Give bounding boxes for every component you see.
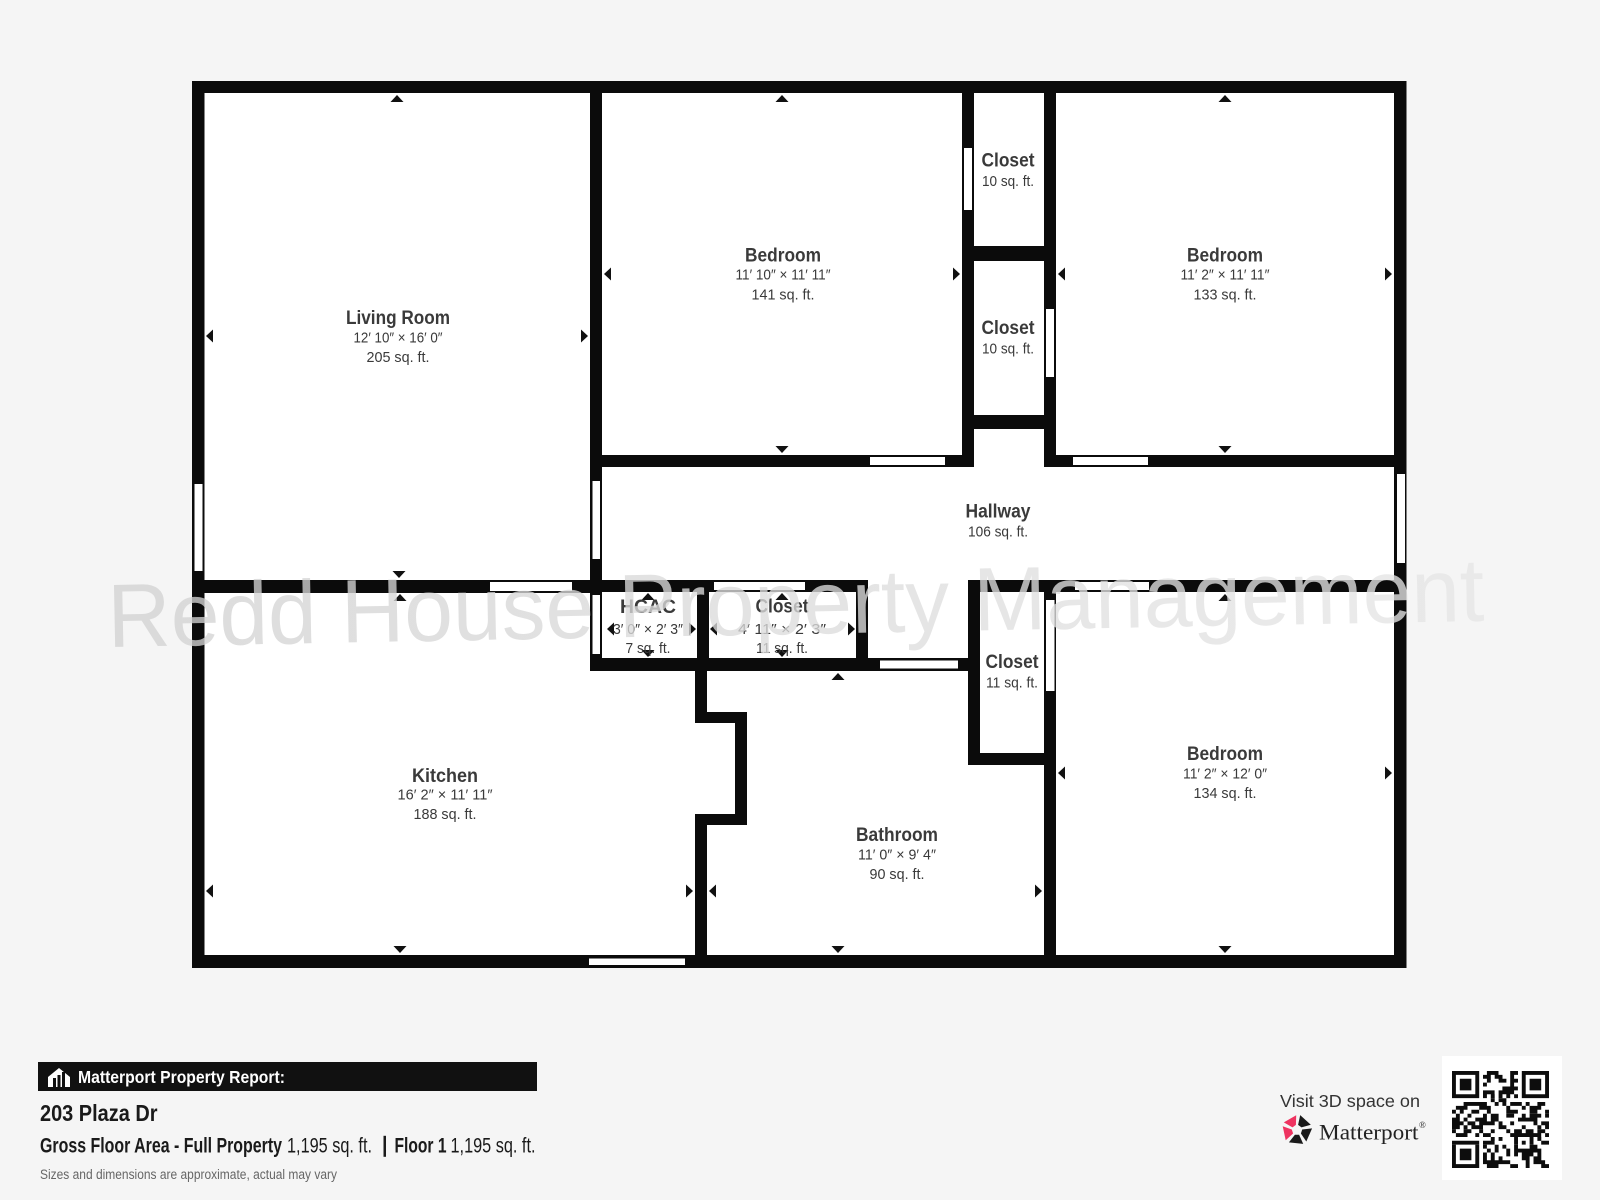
svg-text:11′ 0″ × 9′ 4″: 11′ 0″ × 9′ 4″	[858, 847, 937, 864]
svg-text:90 sq. ft.: 90 sq. ft.	[870, 866, 925, 883]
svg-text:10 sq. ft.: 10 sq. ft.	[982, 173, 1034, 190]
svg-text:Sizes and dimensions are appro: Sizes and dimensions are approximate, ac…	[40, 1167, 337, 1182]
svg-text:11′ 2″ × 12′ 0″: 11′ 2″ × 12′ 0″	[1183, 766, 1268, 783]
svg-text:16′ 2″ × 11′ 11″: 16′ 2″ × 11′ 11″	[398, 787, 494, 804]
svg-text:Matterport Property Report:: Matterport Property Report:	[78, 1067, 285, 1087]
svg-text:12′ 10″ × 16′ 0″: 12′ 10″ × 16′ 0″	[354, 330, 444, 347]
svg-text:Bathroom: Bathroom	[856, 825, 938, 846]
svg-text:Bedroom: Bedroom	[1187, 246, 1263, 267]
svg-text:203 Plaza Dr: 203 Plaza Dr	[40, 1100, 158, 1126]
svg-text:141 sq. ft.: 141 sq. ft.	[752, 287, 815, 304]
svg-text:Bedroom: Bedroom	[1187, 744, 1263, 765]
svg-text:Bedroom: Bedroom	[745, 246, 821, 267]
svg-text:Floor 1: Floor 1	[395, 1135, 447, 1158]
svg-text:1,195 sq. ft.: 1,195 sq. ft.	[287, 1135, 372, 1158]
svg-text:10 sq. ft.: 10 sq. ft.	[982, 341, 1034, 358]
svg-text:Hallway: Hallway	[966, 502, 1031, 523]
svg-text:Kitchen: Kitchen	[412, 766, 478, 787]
svg-text:11 sq. ft.: 11 sq. ft.	[986, 675, 1038, 692]
svg-text:Closet: Closet	[986, 652, 1040, 673]
svg-text:Matterport: Matterport	[1319, 1120, 1419, 1145]
svg-text:Visit 3D space on: Visit 3D space on	[1280, 1091, 1420, 1111]
svg-text:Closet: Closet	[982, 151, 1036, 172]
svg-text:Closet: Closet	[982, 318, 1036, 339]
svg-text:11′ 10″ × 11′ 11″: 11′ 10″ × 11′ 11″	[736, 267, 832, 284]
svg-text:Living Room: Living Room	[346, 308, 450, 329]
svg-text:1,195 sq. ft.: 1,195 sq. ft.	[451, 1135, 536, 1158]
svg-text:®: ®	[1419, 1120, 1426, 1130]
svg-text:188 sq. ft.: 188 sq. ft.	[414, 806, 477, 823]
svg-text:11′ 2″ × 11′ 11″: 11′ 2″ × 11′ 11″	[1181, 267, 1271, 284]
svg-text:106 sq. ft.: 106 sq. ft.	[968, 524, 1028, 541]
svg-text:205 sq. ft.: 205 sq. ft.	[367, 349, 430, 366]
svg-text:133 sq. ft.: 133 sq. ft.	[1194, 287, 1257, 304]
svg-text:134 sq. ft.: 134 sq. ft.	[1194, 785, 1257, 802]
svg-text:Gross Floor Area - Full Proper: Gross Floor Area - Full Property	[40, 1135, 282, 1158]
